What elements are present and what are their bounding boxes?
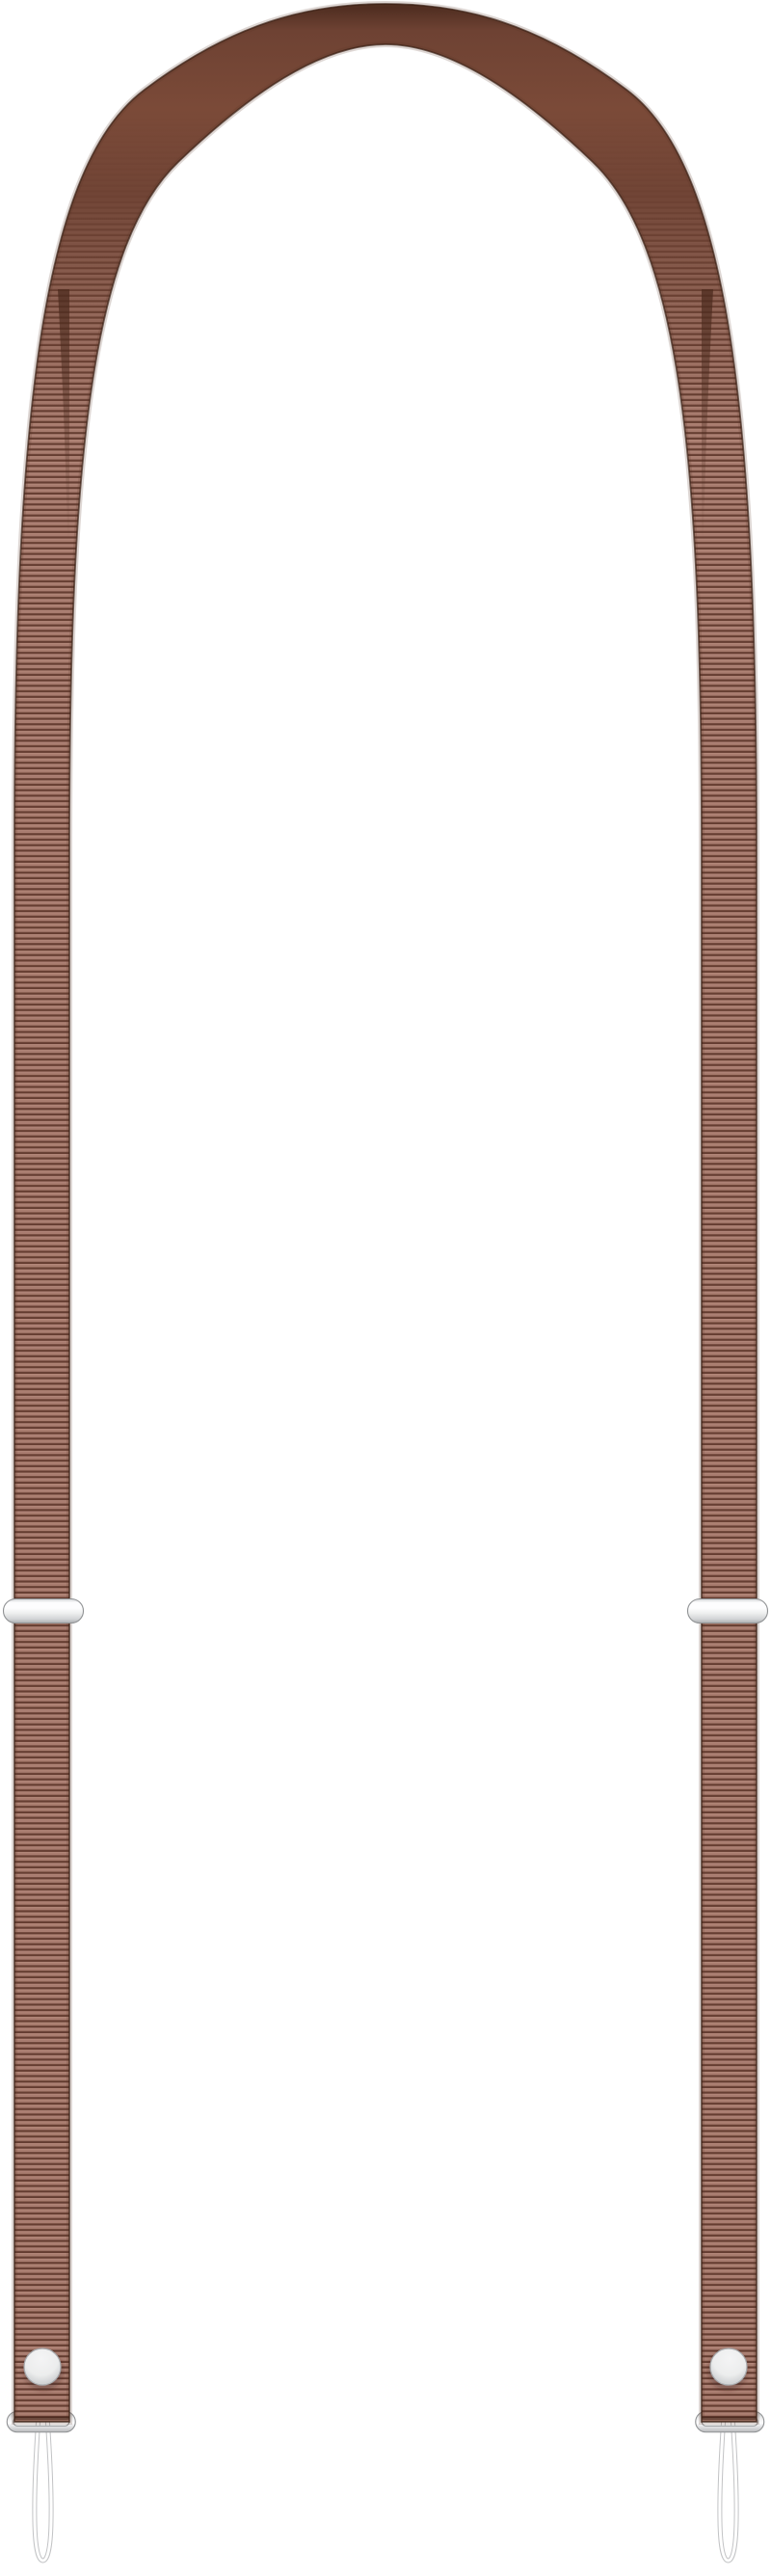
strap-end-fold-right: [702, 2417, 757, 2420]
cord-loop-right: [720, 2416, 736, 2561]
snap-button-left: [24, 2348, 61, 2385]
strap-end-fold-left: [14, 2417, 69, 2420]
end-underlay-left: [11, 2415, 73, 2562]
strap-edge-outline: [14, 4, 757, 2422]
strap-arch-fold: [14, 4, 757, 2422]
adjuster-slider-left: [4, 1599, 84, 1623]
strap-edge-soft-shade: [14, 4, 757, 2422]
snap-button-right: [710, 2348, 747, 2385]
lanyard-product-photo: Brown adjustable lanyard strap: [0, 0, 771, 2576]
strap-webbing: [14, 4, 757, 2422]
adjuster-slider-right: [688, 1599, 768, 1623]
product-photo-canvas: Brown adjustable lanyard strap: [0, 0, 771, 2576]
cord-loop-left: [35, 2416, 51, 2561]
end-underlay-right: [699, 2415, 761, 2562]
